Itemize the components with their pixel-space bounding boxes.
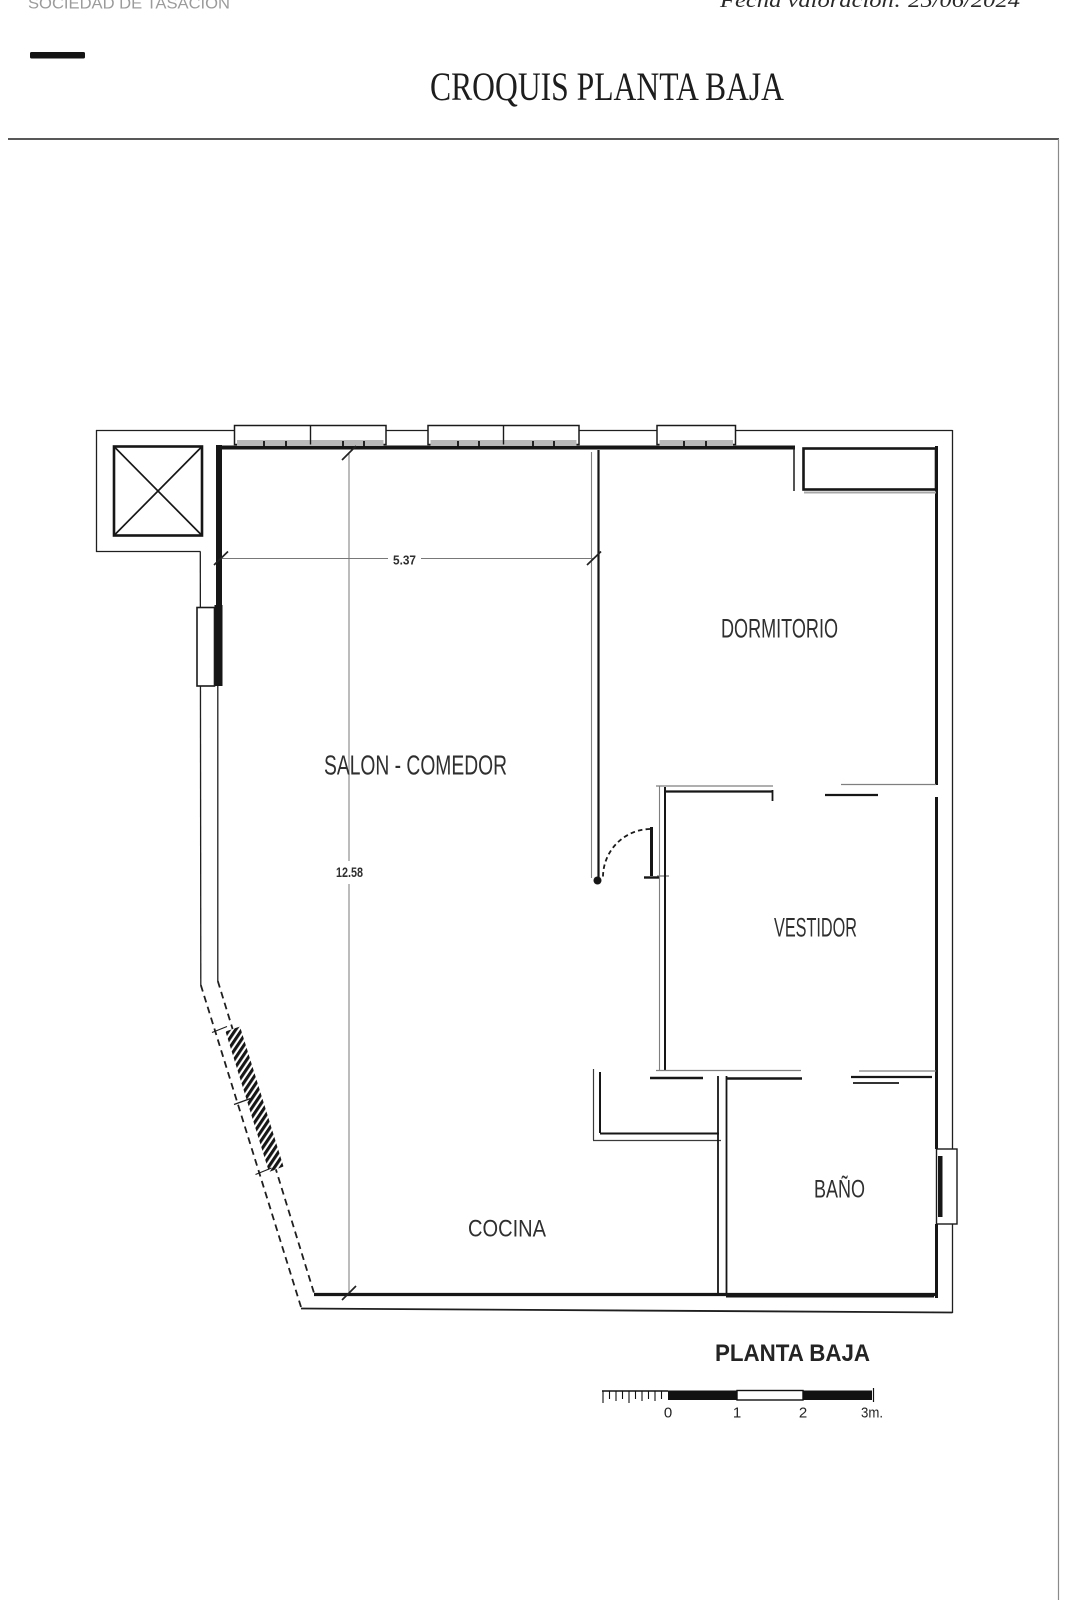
svg-text:DORMITORIO: DORMITORIO: [721, 614, 838, 644]
svg-text:1: 1: [733, 1405, 741, 1422]
svg-text:SALON - COMEDOR: SALON - COMEDOR: [324, 750, 507, 781]
svg-text:Fecha valoración: 25/06/2024: Fecha valoración: 25/06/2024: [719, 0, 1021, 12]
svg-text:5.37: 5.37: [393, 554, 416, 568]
svg-text:0: 0: [664, 1405, 672, 1422]
svg-text:3m.: 3m.: [861, 1405, 883, 1422]
svg-text:BAÑO: BAÑO: [814, 1175, 865, 1204]
svg-text:CROQUIS PLANTA BAJA: CROQUIS PLANTA BAJA: [430, 64, 784, 109]
svg-text:SOCIEDAD DE TASACIÓN: SOCIEDAD DE TASACIÓN: [28, 0, 230, 13]
svg-text:PLANTA BAJA: PLANTA BAJA: [715, 1340, 870, 1367]
svg-text:VESTIDOR: VESTIDOR: [774, 913, 857, 943]
svg-text:12.58: 12.58: [336, 864, 363, 880]
svg-text:2: 2: [799, 1405, 807, 1422]
svg-text:COCINA: COCINA: [468, 1216, 546, 1243]
